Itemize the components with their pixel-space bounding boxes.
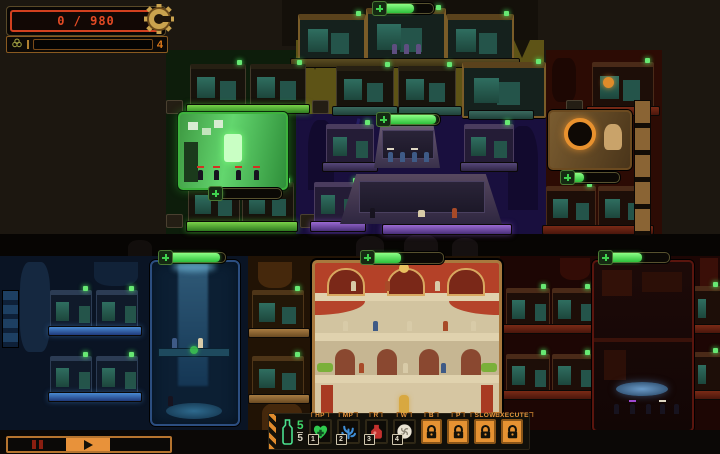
rune-glyph [190,346,198,354]
health-plus-icon [372,1,387,16]
specimen-tank [224,134,242,162]
palace-attic [315,263,499,293]
character[interactable] [254,170,259,180]
elevator[interactable] [312,100,329,114]
character[interactable] [416,44,421,54]
character[interactable] [630,404,635,414]
waterfall-stream [178,264,208,386]
crest-icon [399,263,409,273]
platform [248,394,310,404]
fast-forward-button[interactable] [110,438,170,451]
glow-pool [616,382,668,396]
platform [690,390,720,400]
ampoule-icon [281,419,294,445]
character[interactable] [424,152,429,162]
ability-slot-hp[interactable]: HP 1 [309,419,332,444]
health-plus-icon [360,250,375,265]
padlock-icon [504,423,521,440]
character[interactable] [392,44,397,54]
doorway [377,349,397,375]
character[interactable] [343,321,348,331]
room-palace[interactable] [312,260,502,434]
character[interactable] [236,170,241,180]
character[interactable] [404,44,409,54]
ability-slot-mp[interactable]: MP 2 [337,419,360,444]
character[interactable] [168,396,173,406]
ability-slot-b-locked[interactable]: B [421,419,443,444]
elevator[interactable] [166,214,183,228]
ability-slot-r[interactable]: R 3 [365,419,388,444]
curtain-swag [449,301,499,315]
machinery [642,272,682,292]
room-ship-upper[interactable] [374,124,440,168]
blue-rock [94,262,138,286]
arch [447,268,485,296]
character[interactable] [373,321,378,331]
room-waterfall[interactable] [150,260,240,426]
platform [502,324,598,334]
blue-rock [20,262,50,352]
ability-slot-slow-locked[interactable]: Slow [474,419,496,444]
silhouette [128,240,152,256]
platform [690,324,720,334]
ability-toolbar: 5 5 HP 1 MP 2 R 3 [268,413,530,450]
doorway [419,349,439,375]
character[interactable] [412,152,417,162]
room-ship-main[interactable] [340,174,502,224]
character[interactable] [674,404,679,414]
ember-glow [603,77,614,88]
paper [202,128,211,135]
play-button[interactable] [66,438,110,451]
palace-room-health-bar [366,252,444,264]
hazard-track [33,39,153,50]
character[interactable] [388,152,393,162]
padlock-icon [477,423,494,440]
character[interactable] [214,170,219,180]
ammo-counter: 5 5 [281,419,304,445]
platform [502,390,598,400]
room-forge[interactable] [592,260,694,432]
curtain-swag [315,301,365,315]
resource-counter: 0 / 980 [57,14,115,28]
platform [460,162,518,172]
red-structure [560,258,590,280]
ability-slot-w[interactable]: W 4 [393,419,416,444]
machinery [604,350,626,380]
lab-room-health-bar [214,188,282,199]
paper [188,122,198,130]
game-viewport: 0 / 980 4 [0,0,720,454]
platform [248,328,310,338]
ammo-current: 5 [297,419,304,431]
padlock-icon [423,423,440,440]
waterfall-room-health-bar [164,252,226,263]
character[interactable] [359,363,364,373]
light-glow [172,262,216,272]
room[interactable] [546,186,596,230]
character[interactable] [407,321,412,331]
character[interactable] [198,338,203,348]
character[interactable] [385,281,390,291]
health-plus-icon [158,250,173,265]
arch [327,268,365,296]
character[interactable] [441,363,446,373]
character[interactable] [403,363,408,373]
platform [468,110,534,120]
ability-slot-p-locked[interactable]: P [447,419,469,444]
creature [604,124,622,150]
pool [166,403,222,419]
orange-rock [258,262,292,288]
character[interactable] [646,404,651,414]
doorway [335,349,355,375]
room-portal[interactable] [548,110,632,170]
ship-room-health-bar [382,114,440,125]
character[interactable] [471,321,476,331]
pause-button[interactable] [8,438,66,451]
platform-blue [48,392,142,402]
pipes [2,290,19,348]
character[interactable] [418,210,425,217]
ammo-max: 5 [297,432,303,444]
platform-blue [48,326,142,336]
silhouette [452,238,478,256]
portal-ring-icon [564,118,596,150]
health-plus-icon [376,112,391,127]
character[interactable] [435,281,440,291]
threshold-tick [27,40,29,49]
health-plus-icon [598,250,613,265]
character[interactable] [400,152,405,162]
health-plus-icon [560,170,575,185]
hazard-stripe [269,414,276,449]
sofa [481,363,497,372]
doorway [461,349,481,375]
play-icon [84,440,93,450]
paper [214,120,223,128]
character[interactable] [172,338,177,348]
platform-purple [382,224,512,235]
floor-divider [594,338,692,342]
character[interactable] [198,170,203,180]
gear-icon[interactable] [140,0,178,43]
elevator-shaft[interactable] [634,100,651,236]
platform [322,162,378,172]
character[interactable] [614,404,619,414]
ability-slot-execute-locked[interactable]: Execute [501,419,523,444]
health-plus-icon [208,186,223,201]
character[interactable] [443,321,448,331]
machinery [602,270,632,296]
sofa [317,363,333,372]
maroon-rock [552,58,576,102]
character[interactable] [452,208,457,218]
character[interactable] [351,281,356,291]
speed-controls [6,436,172,453]
room-lab[interactable] [178,112,288,190]
forge-room-health-bar [604,252,670,263]
cabinet [184,142,198,182]
command-room-health-bar [378,3,434,14]
portal-room-health-bar [566,172,620,183]
character[interactable] [660,404,665,414]
character[interactable] [370,208,375,218]
biohazard-icon [11,36,23,54]
platform-green [186,221,298,232]
pause-icon [32,440,43,449]
ship-screens [359,181,484,213]
padlock-icon [450,423,467,440]
